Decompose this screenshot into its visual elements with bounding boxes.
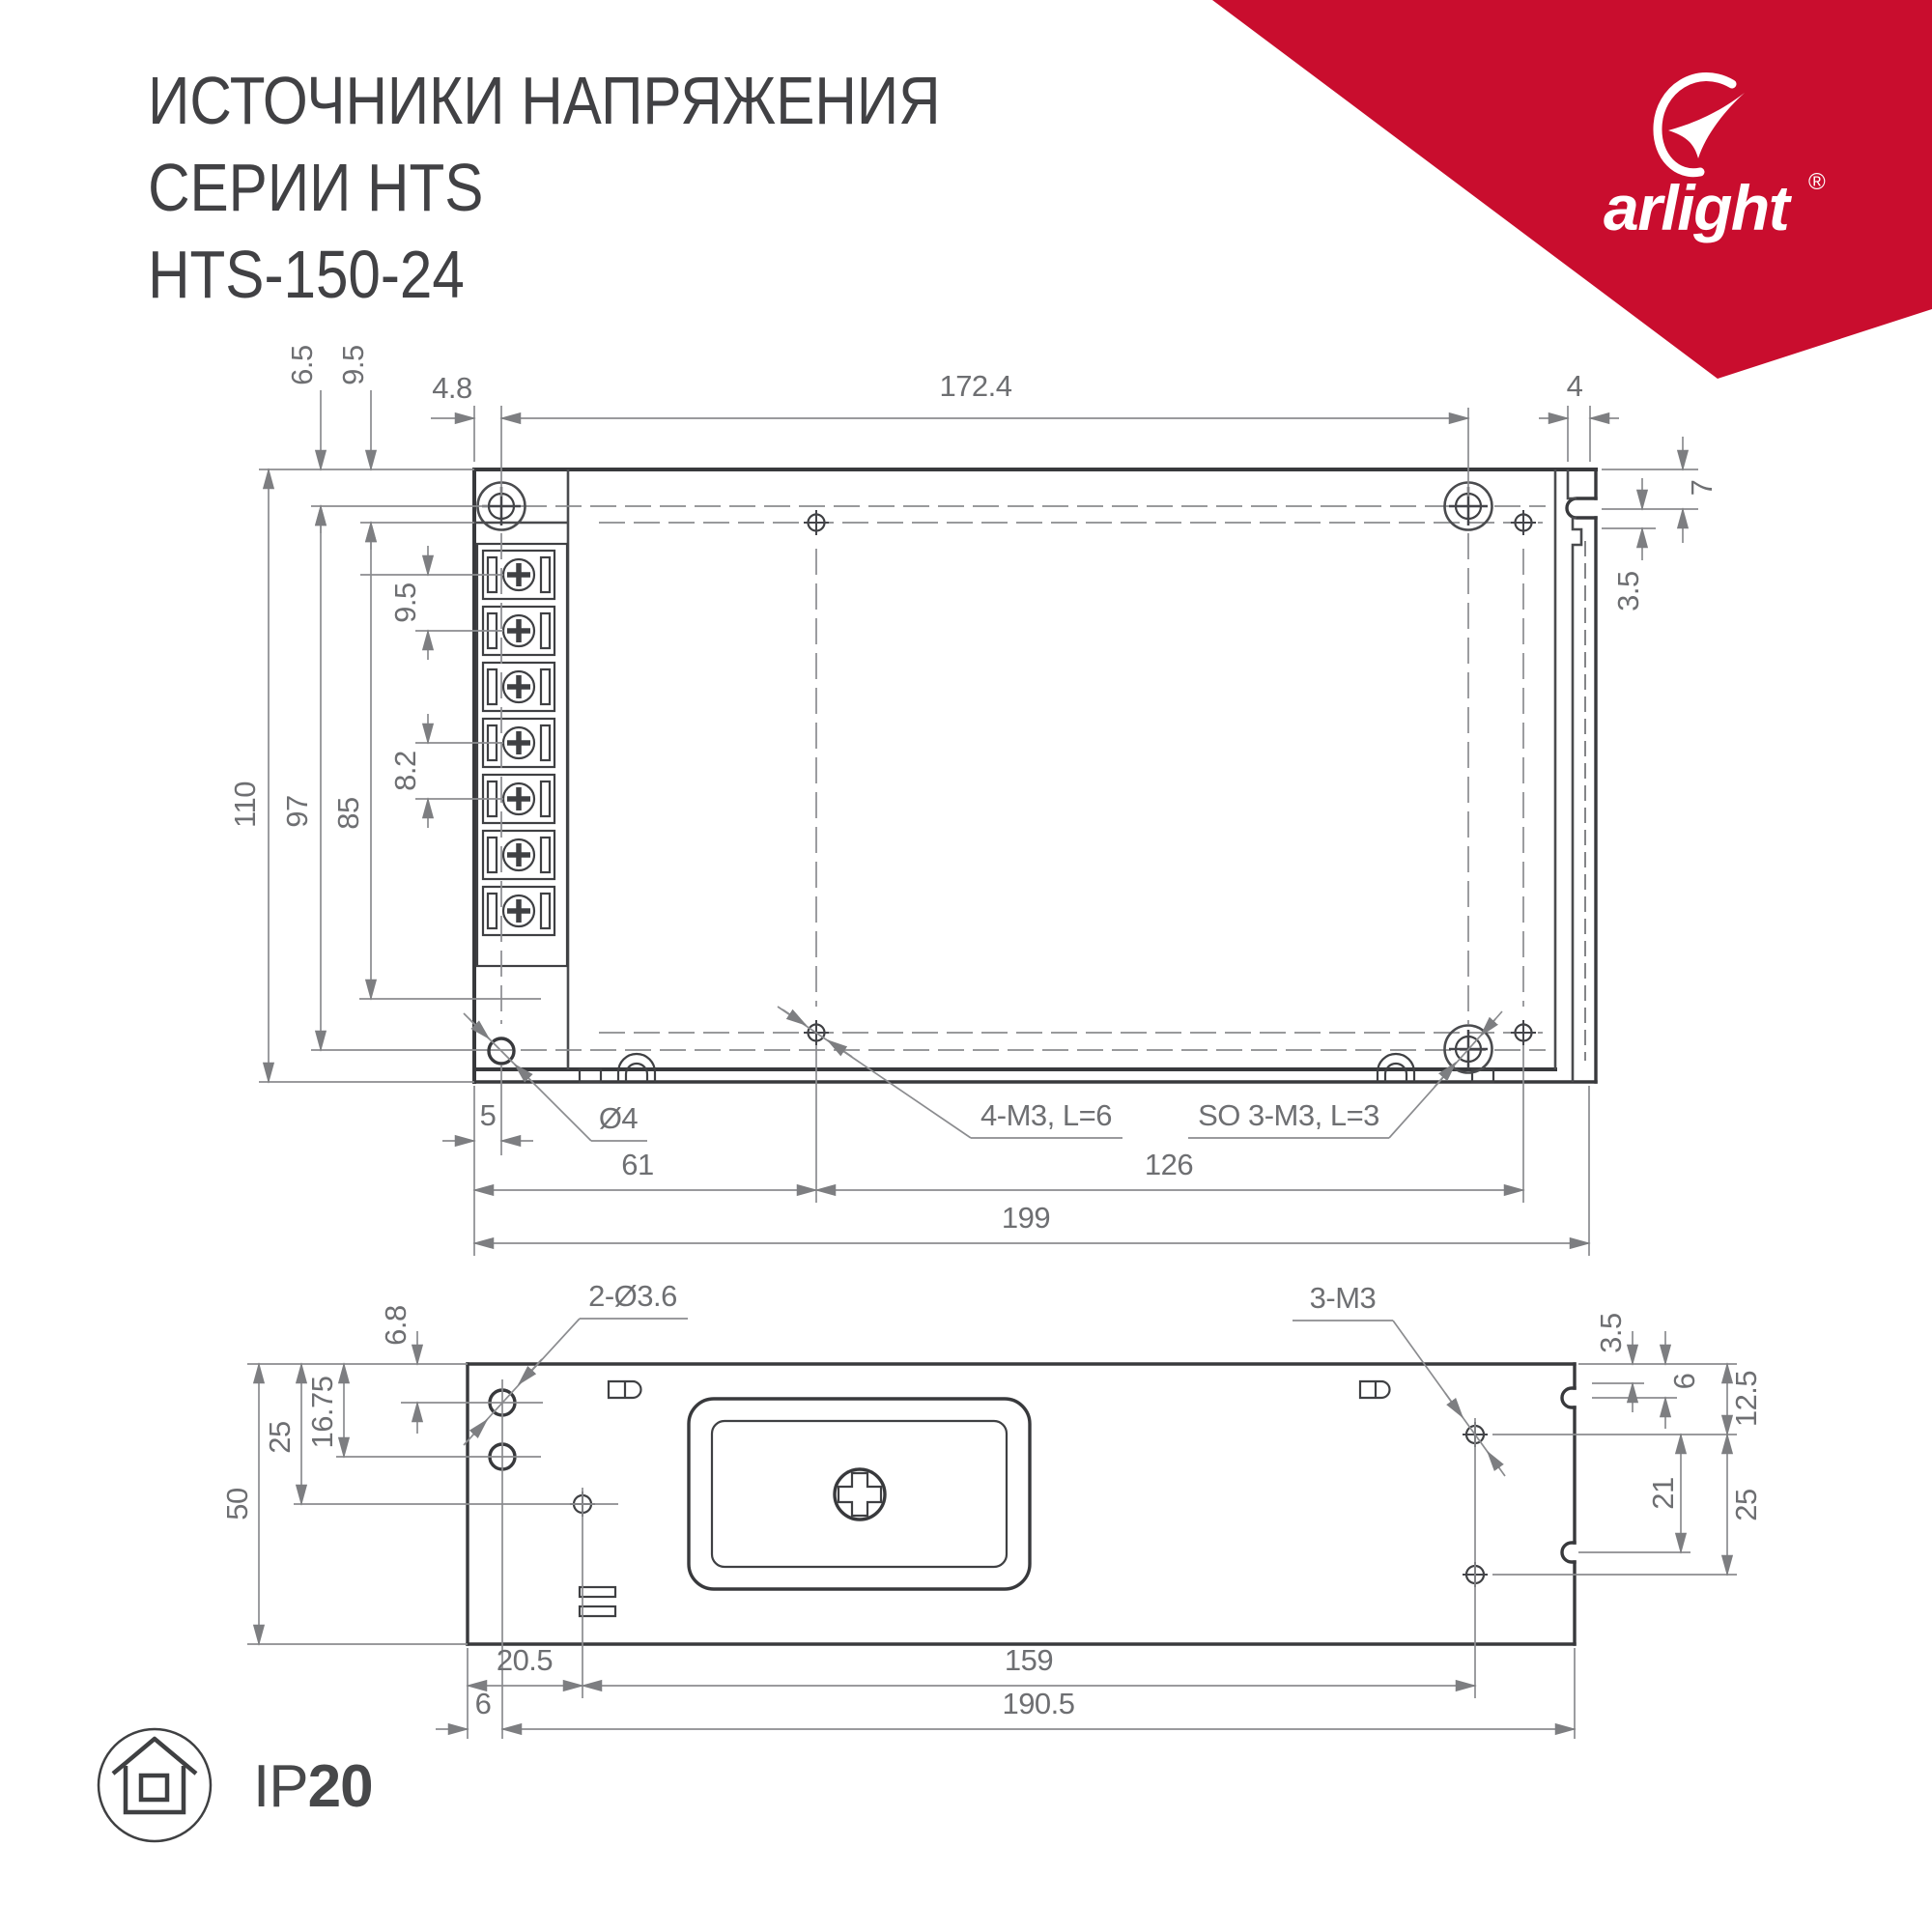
m3-screw (804, 510, 829, 535)
top-view-case (474, 469, 1596, 1082)
window-screw (835, 1469, 885, 1520)
side-view: 50 25 16.75 6.8 2-Ø3.6 3-M3 (220, 1279, 1763, 1739)
brand-name: arlight (1604, 172, 1793, 243)
ip-prefix: IP (253, 1753, 308, 1820)
dim-25-left: 25 (263, 1421, 297, 1453)
dim-terminal-pitch: 9.5 8.2 (360, 546, 503, 828)
window-screw-cross (838, 1473, 881, 1516)
ip-rating-text: IP20 (253, 1753, 373, 1820)
label-screws-3m3: 3-M3 (1310, 1281, 1377, 1315)
dim-199: 199 (1002, 1201, 1050, 1235)
page: ИСТОЧНИКИ НАПРЯЖЕНИЯ СЕРИИ HTS HTS-150-2… (0, 0, 1932, 1932)
brand-banner: arlight ® (1212, 0, 1932, 379)
dim-pitch-8-2: 8.2 (388, 751, 422, 791)
dim-4: 4 (1567, 369, 1583, 403)
side-slot-upper (1562, 1388, 1575, 1407)
drawing-canvas: ИСТОЧНИКИ НАПРЯЖЕНИЯ СЕРИИ HTS HTS-150-2… (0, 0, 1932, 1932)
dim-21: 21 (1646, 1477, 1680, 1509)
dim-159: 159 (1005, 1643, 1053, 1677)
dim-5: 5 (480, 1098, 497, 1132)
dim-126: 126 (1145, 1148, 1193, 1181)
dim-top-row: 4.8 172.4 4 (431, 369, 1619, 497)
page-title: ИСТОЧНИКИ НАПРЯЖЕНИЯ СЕРИИ HTS HTS-150-2… (148, 63, 941, 312)
vent-slot (580, 1587, 615, 1597)
indoor-house-icon (113, 1739, 196, 1812)
bracket-slot (1567, 498, 1596, 518)
dim-3-5-top: 3.5 (1611, 571, 1645, 611)
dim-side-bottom: 20.5 159 6 190.5 (436, 1643, 1575, 1739)
dim-61: 61 (621, 1148, 653, 1181)
side-slot-lower (1562, 1543, 1575, 1562)
bracket-inner-profile (1568, 469, 1581, 1082)
dim-172-4: 172.4 (939, 369, 1011, 403)
label-window-outer (689, 1399, 1030, 1589)
dim-6-8: 6.8 (379, 1305, 412, 1346)
brand-registered-mark: ® (1808, 169, 1826, 195)
title-line-3: HTS-150-24 (148, 237, 465, 312)
dim-85: 85 (331, 797, 365, 829)
dim-190-5: 190.5 (1002, 1687, 1074, 1720)
dim-50: 50 (220, 1488, 254, 1520)
m3-screw (1511, 1020, 1536, 1045)
label-holes-d3-6: 2-Ø3.6 (588, 1279, 677, 1313)
m3-screw (1511, 510, 1536, 535)
dim-bottom-rows: 5 61 126 199 (442, 1045, 1589, 1256)
ip-value: 20 (308, 1753, 373, 1820)
dim-20-5: 20.5 (497, 1643, 553, 1677)
title-line-2: СЕРИИ HTS (148, 150, 483, 225)
top-view-centerlines (486, 506, 1546, 1050)
dim-right-col: 7 3.5 (1602, 437, 1719, 611)
dim-110: 110 (228, 781, 262, 828)
terminal-cell (483, 663, 554, 711)
dim-side-right: 3.5 6 12.5 21 25 (1594, 1313, 1763, 1575)
top-view-screws (478, 483, 1537, 1073)
leader-screws-4m3: 4-M3, L=6 (778, 1007, 1122, 1138)
top-view: 4.8 172.4 4 6.5 9.5 110 97 85 (228, 345, 1719, 1256)
ip-badge: IP20 (99, 1729, 373, 1841)
label-window-inner (712, 1421, 1007, 1567)
dim-16-75: 16.75 (305, 1376, 339, 1448)
dim-6-5: 6.5 (285, 345, 319, 385)
label-screws-4m3: 4-M3, L=6 (980, 1098, 1112, 1132)
dim-pitch-9-5: 9.5 (388, 582, 422, 623)
vent-slot (580, 1606, 615, 1616)
keyhole-right (1360, 1381, 1390, 1398)
label-standoffs: SO 3-M3, L=3 (1198, 1098, 1379, 1132)
dim-side-left: 50 25 16.75 6.8 (220, 1305, 417, 1644)
dim-25-right: 25 (1729, 1489, 1763, 1520)
dim-6-bottom: 6 (475, 1687, 492, 1720)
ip-badge-circle (99, 1729, 211, 1841)
label-hole-d4: Ø4 (599, 1101, 639, 1135)
dim-6-right: 6 (1667, 1374, 1701, 1390)
dim-4-8: 4.8 (432, 371, 472, 405)
terminal-cell (483, 887, 554, 935)
leader-holes-d3-6: 2-Ø3.6 (464, 1279, 688, 1445)
side-view-body (468, 1364, 1575, 1644)
dim-7: 7 (1685, 480, 1719, 497)
dim-12-5: 12.5 (1729, 1371, 1763, 1427)
dim-9-5: 9.5 (336, 345, 370, 385)
terminal-cell (483, 831, 554, 879)
dim-left-col: 6.5 9.5 110 97 85 (228, 345, 541, 1082)
title-line-1: ИСТОЧНИКИ НАПРЯЖЕНИЯ (148, 63, 941, 138)
dim-97: 97 (280, 795, 314, 827)
terminal-block (477, 544, 567, 966)
leader-screws-3m3: 3-M3 (1293, 1281, 1505, 1476)
dim-3-5-side: 3.5 (1594, 1313, 1628, 1353)
keyhole-left (609, 1381, 641, 1398)
